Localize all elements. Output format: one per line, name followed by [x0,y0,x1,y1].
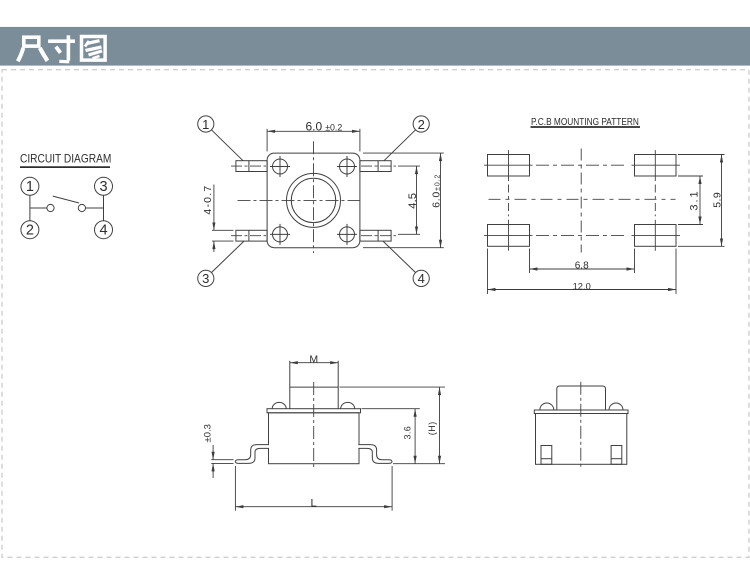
svg-text:6.8: 6.8 [575,260,589,271]
svg-text:(H): (H) [427,421,437,435]
svg-text:6.0: 6.0 [306,120,323,134]
svg-text:6.0±0.2: 6.0±0.2 [431,174,442,208]
svg-text:2: 2 [418,117,425,132]
svg-text:5.9: 5.9 [711,192,723,208]
svg-text:3: 3 [202,271,209,286]
svg-text:3.6: 3.6 [403,426,413,440]
svg-text:±0.3: ±0.3 [203,424,214,442]
svg-text:4: 4 [99,223,107,239]
svg-text:±0.2: ±0.2 [325,123,342,133]
svg-text:1: 1 [26,179,34,195]
svg-text:CIRCUIT DIAGRAM: CIRCUIT DIAGRAM [20,153,111,166]
svg-text:3.1: 3.1 [688,189,700,210]
svg-text:4.5: 4.5 [407,193,419,209]
svg-text:4-0.7: 4-0.7 [202,185,214,215]
svg-text:4: 4 [418,271,425,286]
svg-text:L: L [310,497,316,509]
svg-text:1: 1 [202,117,209,132]
svg-text:M: M [309,353,318,365]
svg-text:P.C.B MOUNTING PATTERN: P.C.B MOUNTING PATTERN [531,116,639,127]
svg-text:12.0: 12.0 [573,281,591,291]
svg-text:3: 3 [99,179,107,195]
svg-text:2: 2 [26,223,34,239]
